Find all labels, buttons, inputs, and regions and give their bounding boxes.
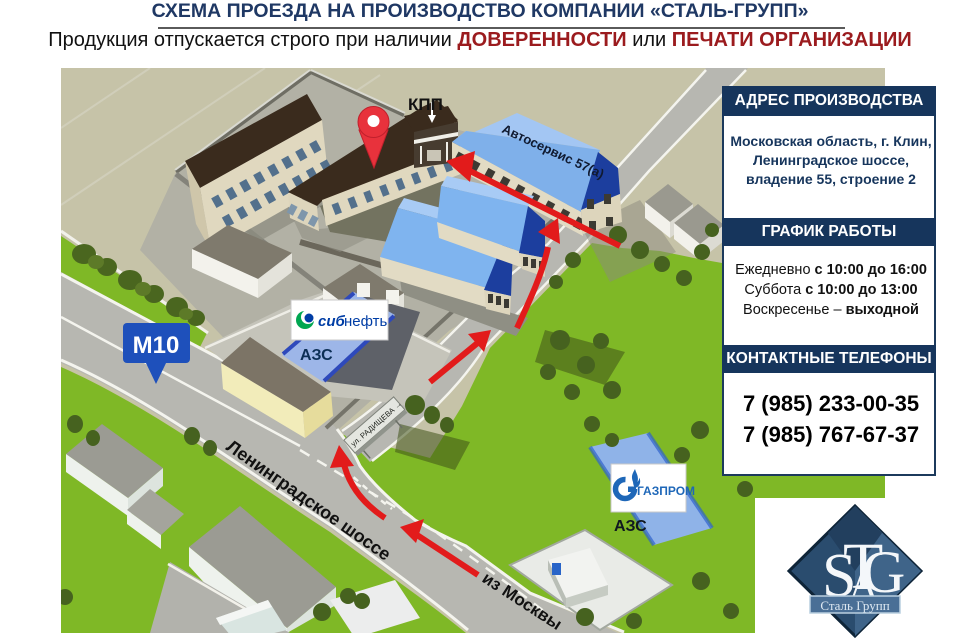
svg-text:Сталь Групп: Сталь Групп — [820, 598, 889, 613]
svg-text:КПП: КПП — [408, 95, 443, 114]
svg-text:АЗС: АЗС — [614, 518, 647, 535]
svg-text:нефть: нефть — [344, 313, 388, 330]
svg-text:сиб: сиб — [318, 313, 346, 330]
svg-text:ГАЗПРОМ: ГАЗПРОМ — [637, 484, 695, 498]
svg-text:М10: М10 — [133, 332, 180, 359]
svg-text:АЗС: АЗС — [300, 347, 333, 364]
